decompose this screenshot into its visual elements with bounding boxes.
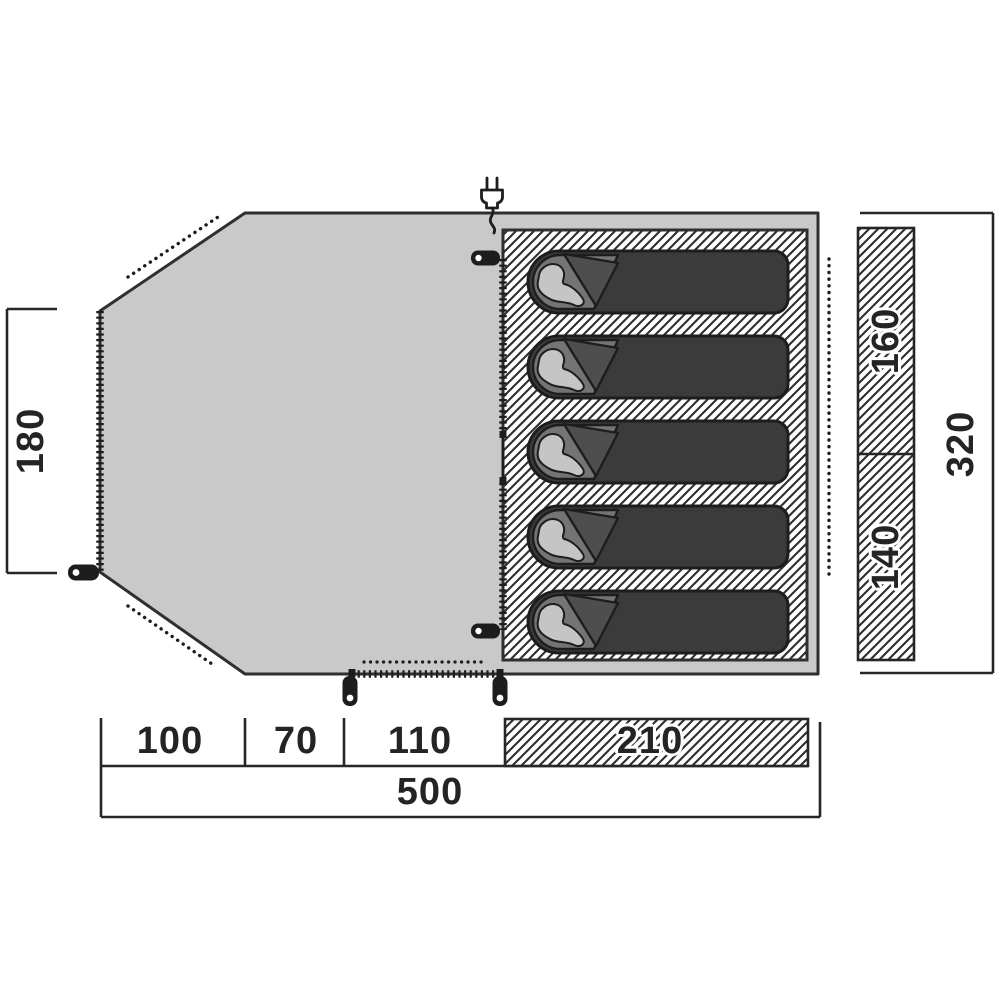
zipper-pull-bottom: [500, 477, 507, 484]
sleeping-bag-3: [528, 421, 788, 483]
sleeping-cabin: [503, 230, 807, 660]
dim-label-porch-depth: 180: [12, 408, 50, 474]
tent-peg-icon-door-right: [493, 676, 508, 706]
dim-label-seg-110: 110: [388, 722, 452, 760]
zipper-stop-right: [497, 669, 504, 677]
tent-floorplan: 180 160 140 320 100 70 110 210 500: [0, 0, 1000, 1000]
dim-label-depth-total: 320: [942, 411, 980, 477]
zipper-pull-top: [500, 431, 507, 438]
tent-peg-icon-left: [68, 565, 99, 581]
tent-floorplan-drawing: [0, 0, 1000, 1000]
dim-label-length-total: 500: [397, 773, 463, 811]
sleeping-bag-2: [528, 336, 788, 398]
sleeping-bag-4: [528, 506, 788, 568]
dim-label-berth-bottom: 140: [867, 524, 905, 590]
dim-label-seg-210: 210: [617, 722, 683, 760]
tent-peg-icon-door-left: [343, 676, 358, 706]
zipper-stop-left: [349, 669, 356, 677]
tent-peg-icon-cabin-bottom: [471, 624, 500, 639]
dim-label-seg-100: 100: [137, 722, 203, 760]
sleeping-bag-5: [528, 591, 788, 653]
dim-label-seg-70: 70: [274, 722, 318, 760]
tent-peg-icon-cabin-top: [471, 251, 500, 266]
dim-bar-berths: [858, 228, 914, 660]
sleeping-bag-1: [528, 251, 788, 313]
dim-label-berth-top: 160: [867, 308, 905, 374]
